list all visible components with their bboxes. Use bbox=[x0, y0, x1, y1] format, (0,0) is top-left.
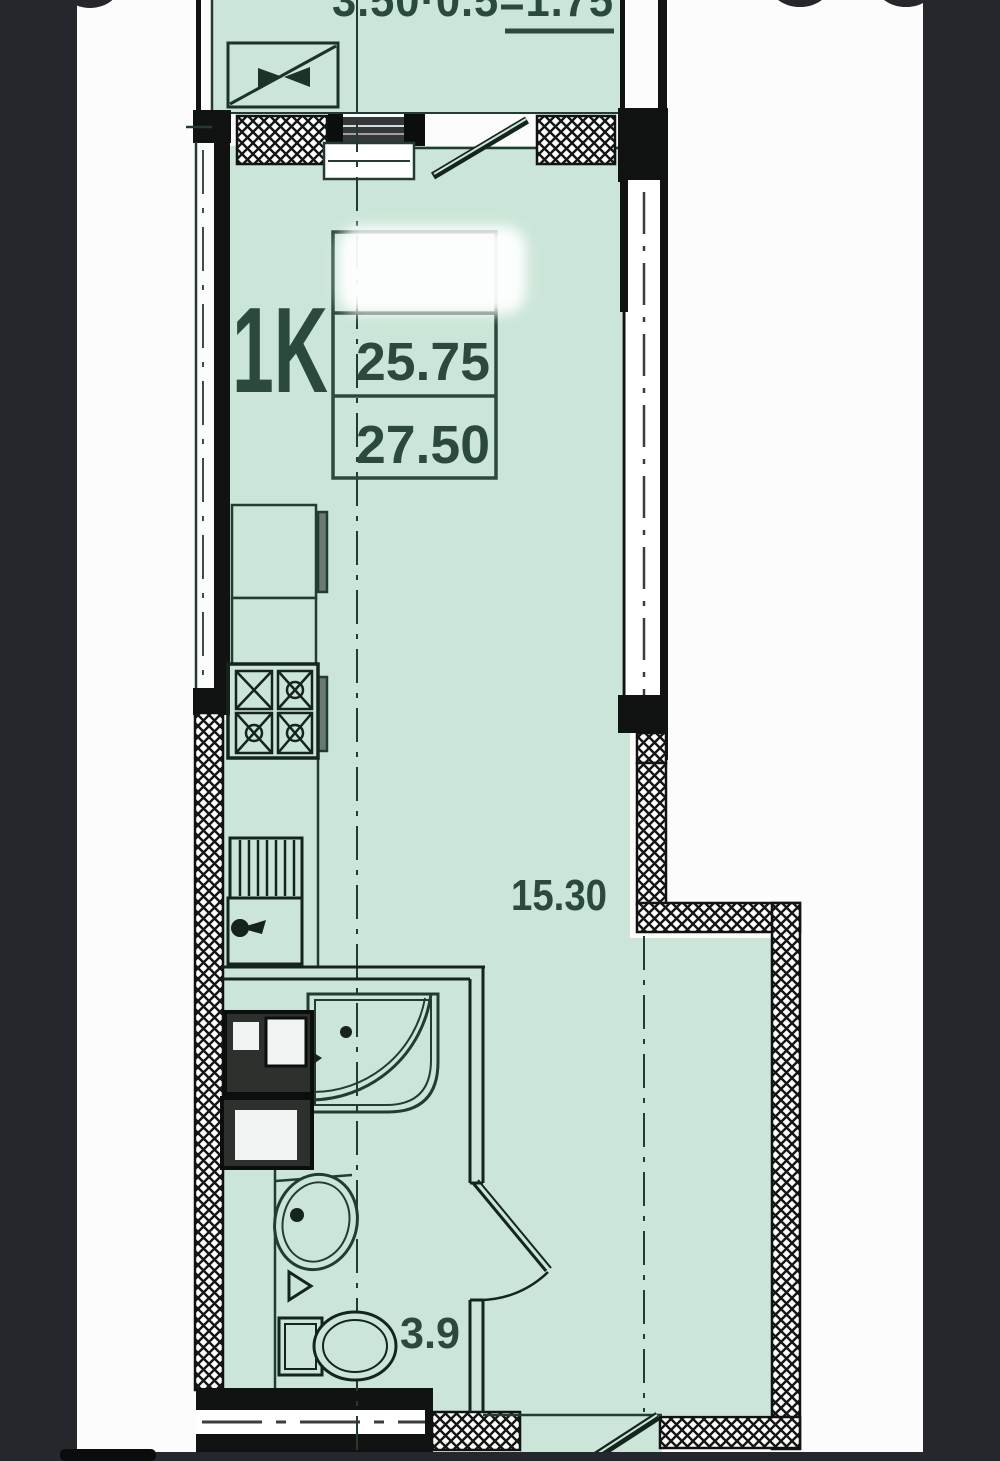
bathroom-area-label: 3.9 bbox=[400, 1309, 460, 1358]
balcony-window-glazing bbox=[328, 114, 425, 146]
balcony-formula-text: 3.50·0.5=1.75 bbox=[332, 0, 614, 26]
total-area-value: 27.50 bbox=[356, 415, 490, 475]
unit-type-label: 1K bbox=[232, 282, 328, 418]
room-area-label: 15.30 bbox=[511, 871, 607, 920]
redaction-blur bbox=[338, 226, 526, 314]
living-area-value: 25.75 bbox=[356, 332, 490, 392]
washing-machine-icon bbox=[222, 1012, 312, 1168]
screenshot-root: 3.50·0.5=1.75 bbox=[0, 0, 1000, 1461]
right-window bbox=[618, 108, 668, 763]
floor-plan-image: 3.50·0.5=1.75 bbox=[0, 0, 1000, 1461]
